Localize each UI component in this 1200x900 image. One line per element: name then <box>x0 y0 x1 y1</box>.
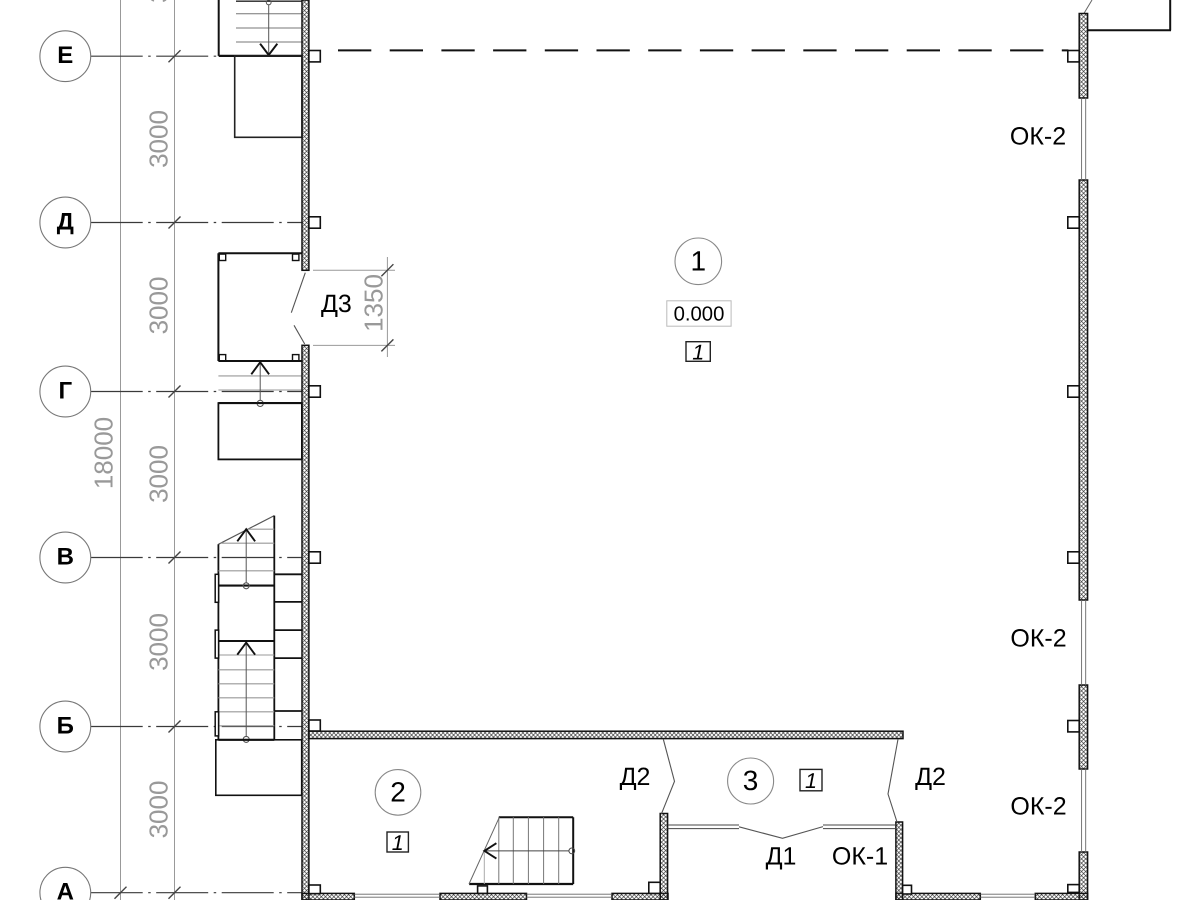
svg-text:Г: Г <box>58 377 72 404</box>
svg-text:ОК-2: ОК-2 <box>1010 792 1066 820</box>
svg-text:Д3: Д3 <box>321 290 352 318</box>
svg-text:Д2: Д2 <box>915 763 946 791</box>
svg-text:1: 1 <box>692 340 704 364</box>
svg-text:1350: 1350 <box>358 274 388 332</box>
svg-text:В: В <box>57 543 74 570</box>
svg-text:3000: 3000 <box>144 110 174 168</box>
svg-text:3000: 3000 <box>144 781 174 839</box>
svg-text:1: 1 <box>805 769 817 793</box>
svg-text:А: А <box>57 879 74 900</box>
svg-text:0.000: 0.000 <box>674 304 725 326</box>
svg-text:3000: 3000 <box>144 0 174 3</box>
svg-text:Д: Д <box>57 208 74 235</box>
svg-text:Д1: Д1 <box>766 843 797 871</box>
svg-text:3000: 3000 <box>144 277 174 335</box>
svg-text:3000: 3000 <box>144 445 174 503</box>
svg-text:Д2: Д2 <box>620 763 651 791</box>
svg-text:3000: 3000 <box>144 613 174 671</box>
svg-text:Е: Е <box>57 42 73 69</box>
svg-text:1: 1 <box>392 831 404 855</box>
svg-text:3: 3 <box>743 765 759 796</box>
svg-text:18000: 18000 <box>88 417 118 489</box>
svg-text:ОК-2: ОК-2 <box>1010 625 1066 653</box>
svg-text:1: 1 <box>691 245 707 276</box>
svg-text:ОК-1: ОК-1 <box>832 843 888 871</box>
svg-text:2: 2 <box>390 777 406 808</box>
svg-text:Б: Б <box>57 712 74 739</box>
svg-text:ОК-2: ОК-2 <box>1010 122 1066 150</box>
